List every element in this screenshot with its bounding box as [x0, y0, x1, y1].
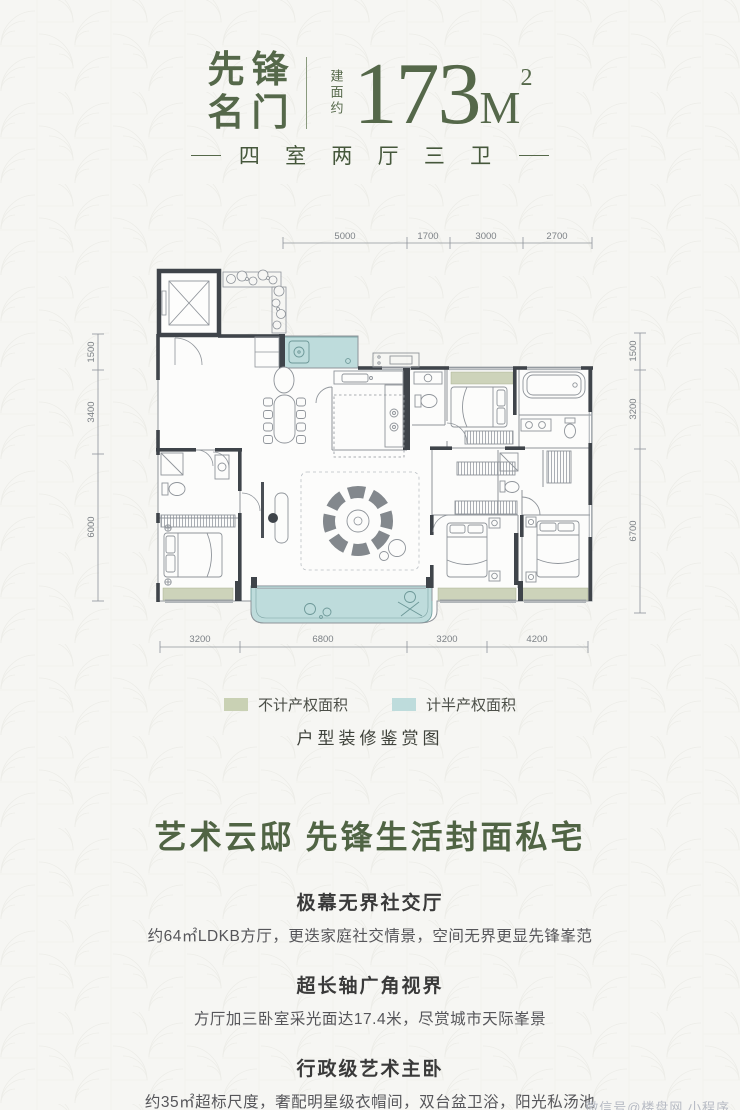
subtitle-dash-left — [191, 155, 221, 156]
section-body: 约64㎡LDKB方厅，更迭家庭社交情景，空间无界更显先锋峯范 — [0, 924, 740, 946]
poster-page: 先锋 名门 建面约 173M2 四 室 两 厅 三 卫 50 — [0, 0, 740, 1110]
plan-legend: 不计产权面积 计半产权面积 — [0, 694, 740, 715]
legend-swatch-green — [224, 698, 248, 711]
section-heading: 超长轴广角视界 — [0, 971, 740, 998]
dim-top-4: 2700 — [546, 231, 567, 242]
legend-item-half: 计半产权面积 — [392, 694, 516, 715]
section-heading: 行政级艺术主卧 — [0, 1054, 740, 1081]
area-superscript: 2 — [520, 65, 532, 91]
speaker-icon — [268, 513, 278, 523]
feature-section-1: 极幕无界社交厅 约64㎡LDKB方厅，更迭家庭社交情景，空间无界更显先锋峯范 — [0, 888, 740, 946]
brand-name: 先锋 名门 — [208, 50, 296, 136]
main-title: 艺术云邸 先锋生活封面私宅 — [0, 812, 740, 858]
wardrobe — [465, 431, 513, 444]
brand-line1: 先锋 — [208, 50, 296, 93]
dim-left-3: 6000 — [86, 516, 97, 537]
wardrobe — [457, 462, 515, 475]
brand-line2: 名门 — [208, 93, 296, 136]
subtitle-dash-right — [519, 155, 549, 156]
elevator — [159, 271, 219, 335]
plan-caption: 户型装修鉴赏图 — [0, 724, 740, 749]
legend-label-half: 计半产权面积 — [426, 694, 516, 715]
section-heading: 极幕无界社交厅 — [0, 888, 740, 915]
area-value: 173M2 — [354, 38, 533, 148]
window-sill-top-bedroom — [451, 372, 513, 384]
armchair — [389, 540, 406, 557]
dim-top-1: 5000 — [334, 231, 355, 242]
header-divider — [306, 57, 307, 129]
area-unit: M — [480, 82, 521, 133]
feature-sections: 极幕无界社交厅 约64㎡LDKB方厅，更迭家庭社交情景，空间无界更显先锋峯范 超… — [0, 888, 740, 1110]
window-sill-mid — [438, 588, 516, 600]
wardrobe — [547, 451, 571, 483]
legend-swatch-teal — [392, 698, 416, 711]
area-prefix: 建面约 — [327, 69, 346, 117]
dim-left-1: 1500 — [86, 341, 97, 362]
legend-item-excluded: 不计产权面积 — [224, 694, 348, 715]
dim-right-2: 3200 — [628, 398, 639, 419]
dim-right-3: 6700 — [628, 520, 639, 541]
dim-bottom-2: 6800 — [312, 634, 333, 645]
entry-planter — [223, 270, 286, 333]
wardrobe — [455, 501, 517, 514]
subtitle-text: 四 室 两 厅 三 卫 — [239, 140, 501, 170]
dim-right-1: 1500 — [628, 340, 639, 361]
header: 先锋 名门 建面约 173M2 — [0, 38, 740, 148]
dim-top-3: 3000 — [475, 231, 496, 242]
legend-label-excluded: 不计产权面积 — [258, 694, 348, 715]
area-number: 173 — [354, 46, 480, 143]
watermark: 微信号@楼盘网 小程序 — [500, 1097, 730, 1110]
balcony — [251, 586, 432, 623]
section-body: 方厅加三卧室采光面达17.4米，尽赏城市天际峯景 — [0, 1007, 740, 1029]
window-sill-left — [163, 588, 233, 600]
wardrobe — [161, 515, 235, 527]
dim-bottom-4: 4200 — [526, 634, 547, 645]
layout-subtitle: 四 室 两 厅 三 卫 — [0, 140, 740, 170]
feature-section-2: 超长轴广角视界 方厅加三卧室采光面达17.4米，尽赏城市天际峯景 — [0, 971, 740, 1029]
dim-bottom-3: 3200 — [436, 634, 457, 645]
dim-left-2: 3400 — [86, 401, 97, 422]
coffee-table — [347, 510, 369, 532]
window-sill-right — [522, 588, 588, 600]
dim-top-2: 1700 — [417, 231, 438, 242]
floorplan-diagram: 5000 1700 3000 2700 1500 3400 6000 1500 … — [85, 225, 660, 665]
dim-bottom-1: 3200 — [189, 634, 210, 645]
